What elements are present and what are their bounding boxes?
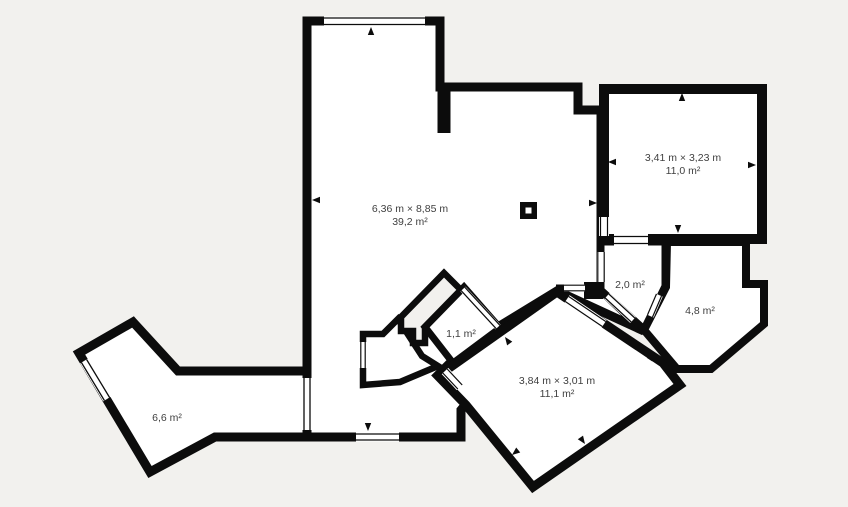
- room-center-small-area-label: 2,0 m²: [615, 279, 645, 291]
- interior-wall-stub: [438, 87, 451, 133]
- room-top-right-dimensions-label: 3,41 m × 3,23 m: [645, 152, 721, 164]
- floorplan-canvas: 6,36 m × 8,85 m 39,2 m² 3,41 m × 3,23 m …: [0, 0, 848, 507]
- room-top-right-area-label: 11,0 m²: [666, 165, 701, 177]
- wall-stub-block: [584, 282, 603, 299]
- room-tiny-area-label: 1,1 m²: [446, 328, 476, 340]
- room-rotated-dimensions-label: 3,84 m × 3,01 m: [519, 375, 595, 387]
- room-right-area-label: 4,8 m²: [685, 305, 715, 317]
- floorplan-drawing: 6,36 m × 8,85 m 39,2 m² 3,41 m × 3,23 m …: [0, 0, 848, 507]
- room-bottom-left-area-label: 6,6 m²: [152, 412, 182, 424]
- room-rotated-area-label: 11,1 m²: [540, 388, 575, 400]
- room-main-area-label: 39,2 m²: [392, 216, 428, 228]
- room-top-right-shape[interactable]: [604, 89, 762, 239]
- column-marker: [520, 202, 537, 219]
- room-main-dimensions-label: 6,36 m × 8,85 m: [372, 203, 448, 215]
- column-inner: [526, 208, 532, 214]
